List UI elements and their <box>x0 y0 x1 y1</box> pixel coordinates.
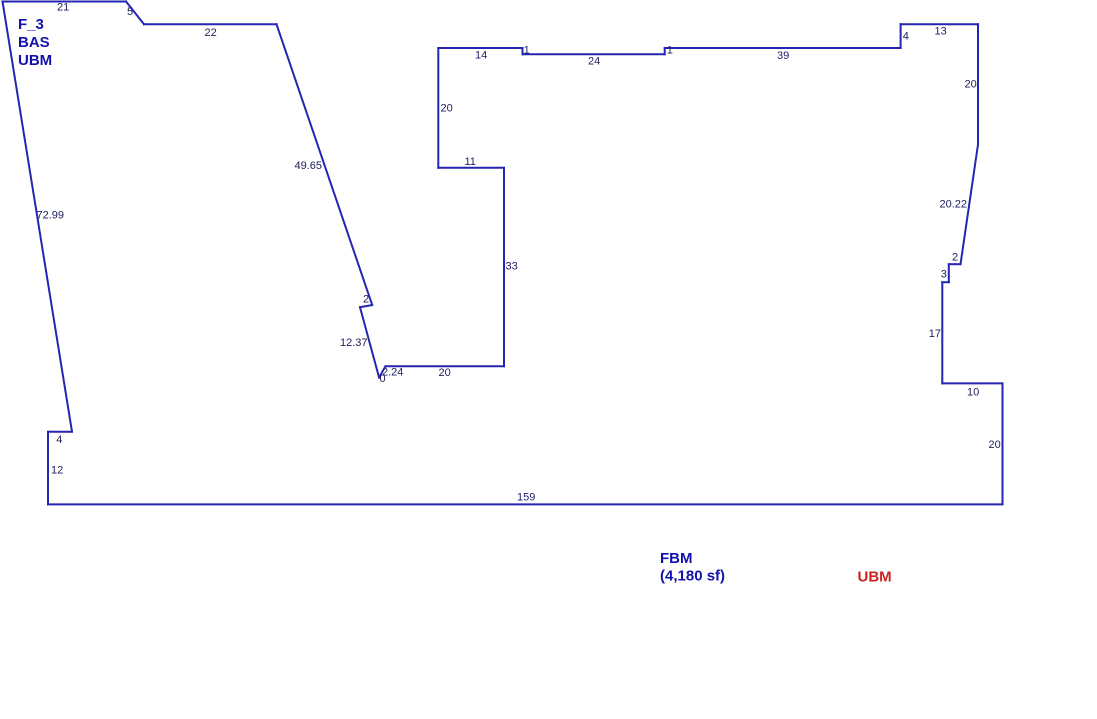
svg-text:20: 20 <box>441 103 453 115</box>
svg-text:4: 4 <box>56 434 62 446</box>
svg-text:3: 3 <box>941 269 947 281</box>
svg-text:F_3: F_3 <box>18 16 44 33</box>
svg-text:13: 13 <box>935 26 947 38</box>
svg-text:10: 10 <box>967 386 979 398</box>
svg-text:20: 20 <box>989 439 1001 451</box>
svg-text:39: 39 <box>777 50 789 62</box>
svg-text:33: 33 <box>506 261 518 273</box>
svg-text:11: 11 <box>465 156 476 168</box>
svg-text:24: 24 <box>588 56 600 68</box>
svg-text:5: 5 <box>127 6 133 18</box>
svg-text:12: 12 <box>51 464 63 476</box>
svg-text:2: 2 <box>363 294 369 306</box>
svg-text:21: 21 <box>57 2 69 14</box>
svg-text:1: 1 <box>667 45 673 57</box>
svg-text:2: 2 <box>952 252 958 264</box>
svg-text:20: 20 <box>965 79 977 91</box>
svg-text:UBM: UBM <box>18 52 52 69</box>
svg-text:22: 22 <box>205 27 217 39</box>
svg-text:1: 1 <box>524 45 530 57</box>
svg-text:4: 4 <box>903 31 909 43</box>
svg-text:159: 159 <box>517 492 535 504</box>
svg-text:72.99: 72.99 <box>37 210 65 222</box>
svg-text:UBM: UBM <box>858 569 892 586</box>
svg-text:12.37: 12.37 <box>340 337 368 349</box>
svg-text:FBM: FBM <box>660 550 693 567</box>
svg-text:2.24: 2.24 <box>382 367 403 379</box>
svg-text:17: 17 <box>929 328 941 340</box>
svg-text:49.65: 49.65 <box>295 160 323 172</box>
svg-text:20.22: 20.22 <box>940 199 968 211</box>
svg-text:14: 14 <box>475 50 487 62</box>
svg-text:BAS: BAS <box>18 34 50 51</box>
svg-text:20: 20 <box>439 367 451 379</box>
svg-text:(4,180 sf): (4,180 sf) <box>660 568 725 585</box>
